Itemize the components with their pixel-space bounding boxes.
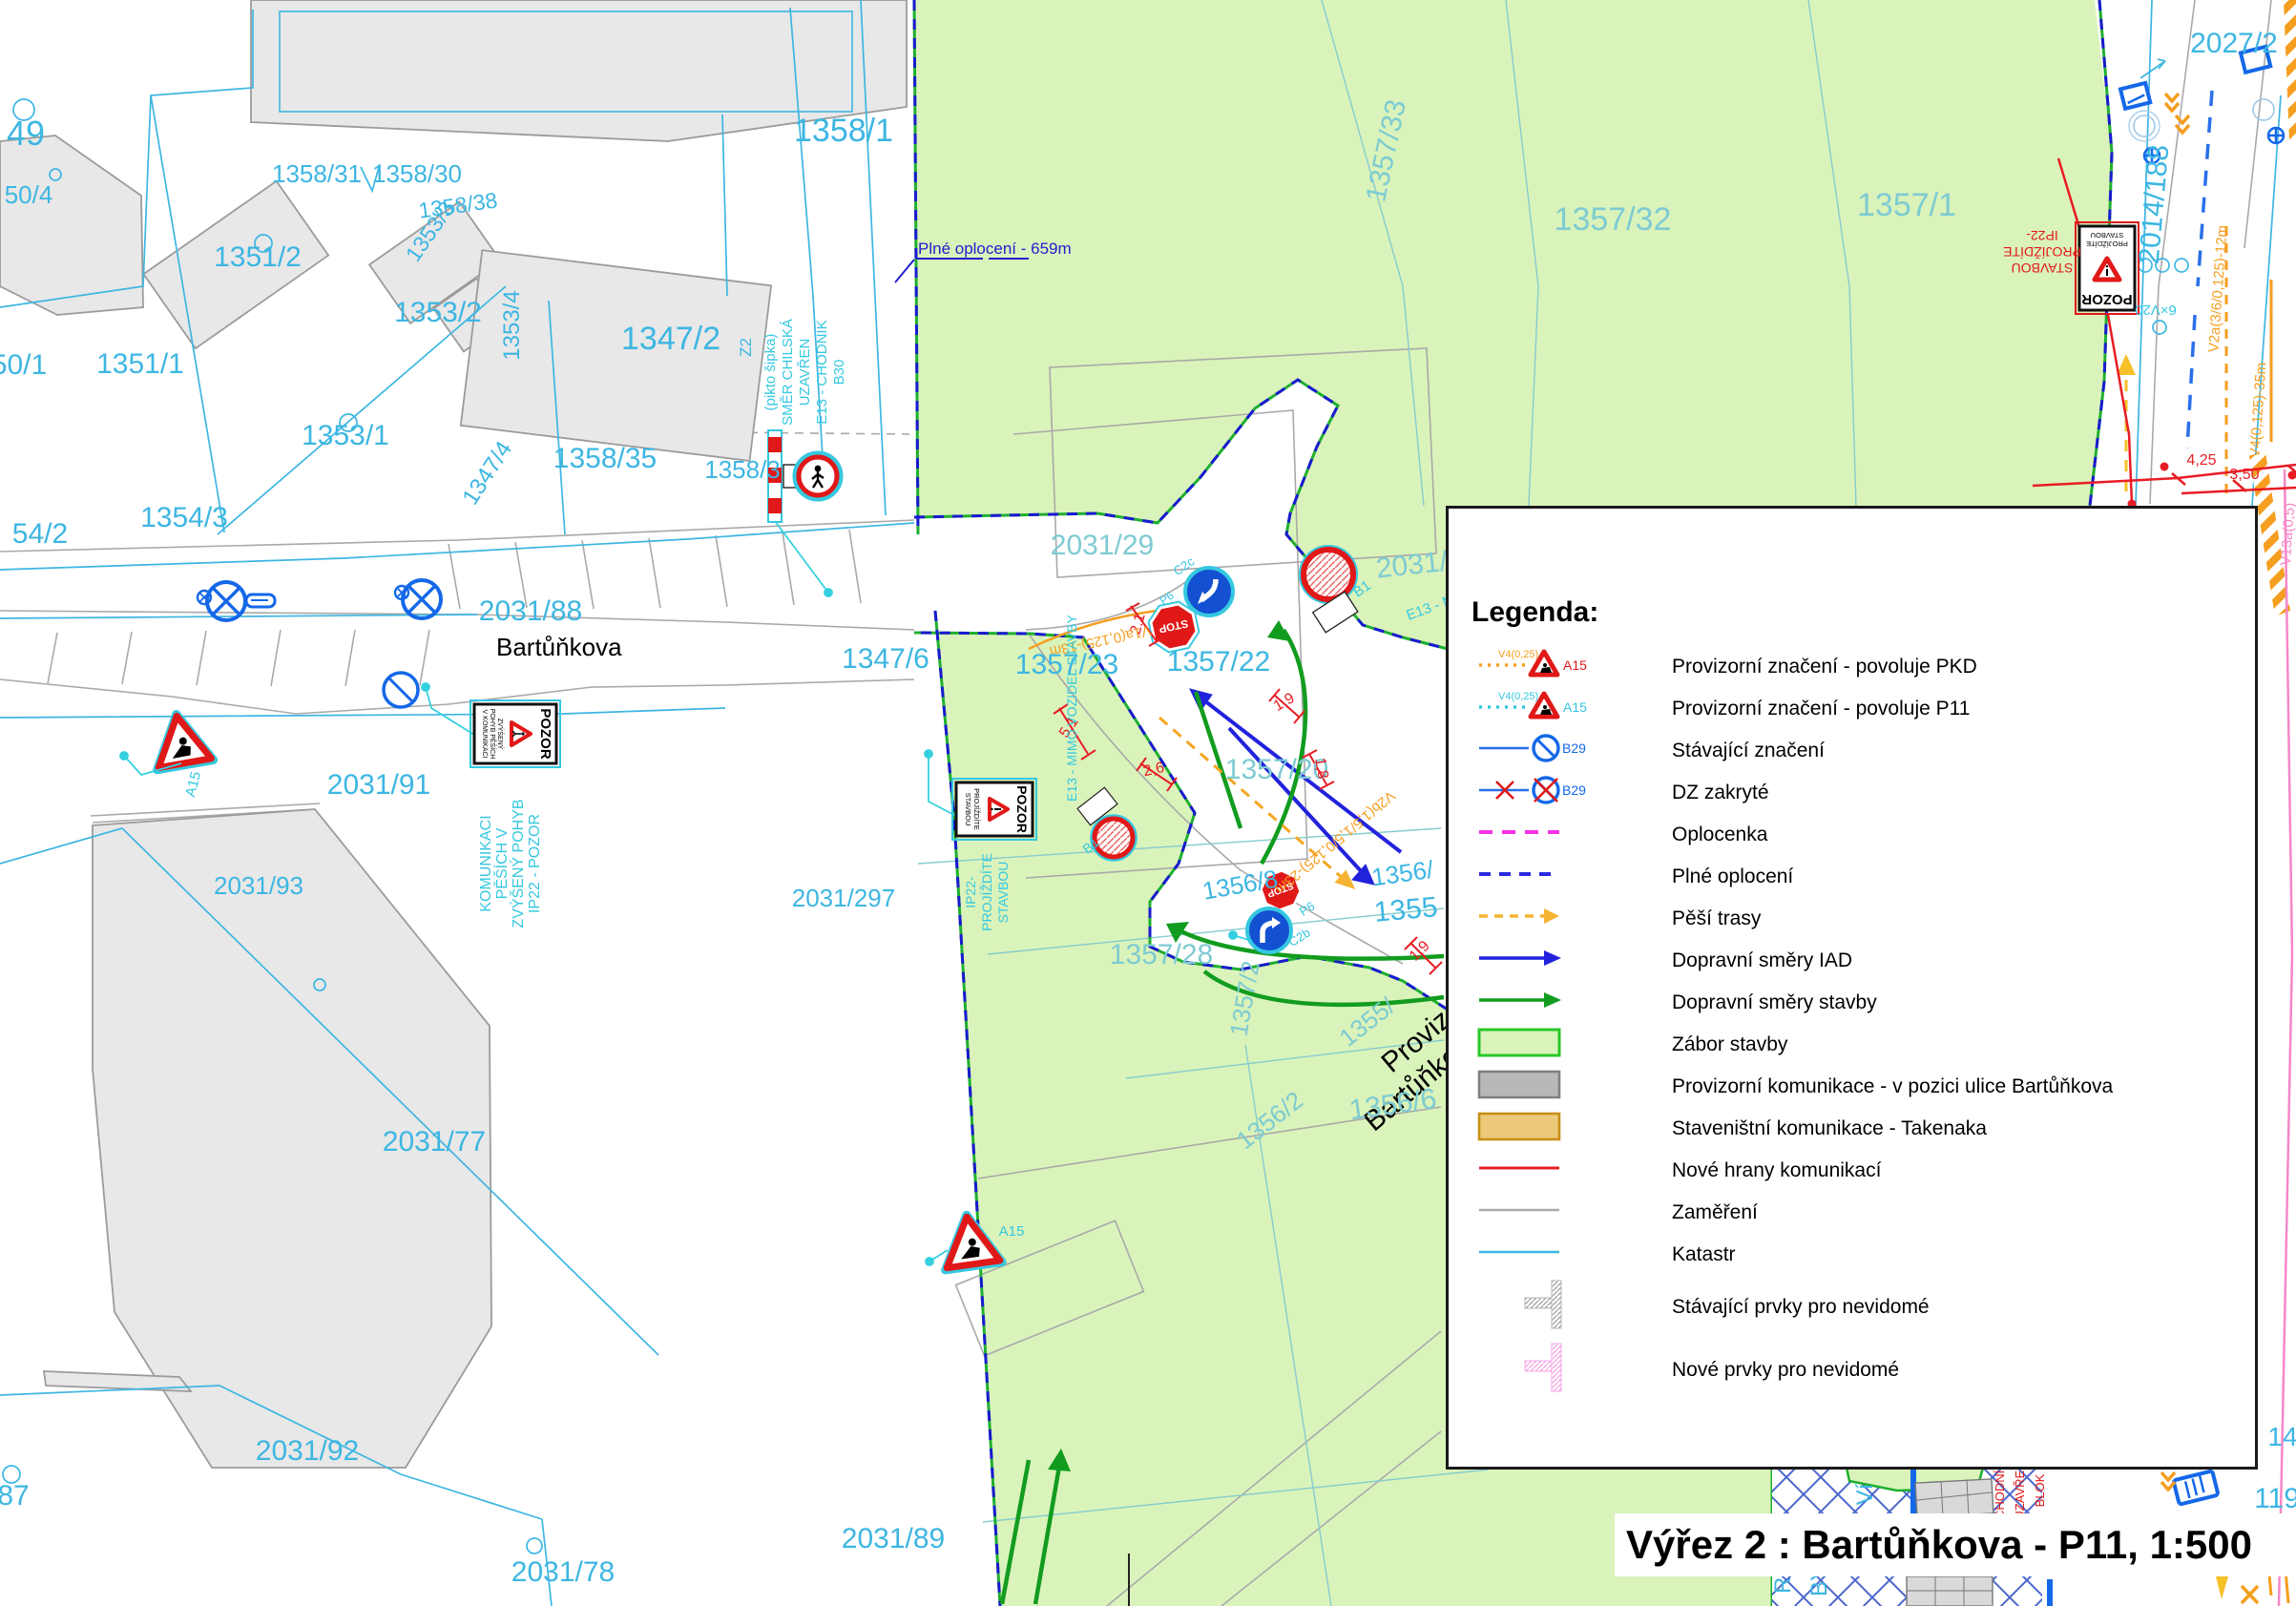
parcel-label: 2027/2: [2190, 28, 2278, 59]
legend-item-label: Pěší trasy: [1672, 907, 1761, 930]
legend-item-label: Stávající značení: [1672, 740, 1825, 762]
legend-symbol-pesi-trasy: [1472, 900, 1672, 938]
svg-text:Plné oplocení - 659m: Plné oplocení - 659m: [918, 240, 1072, 258]
legend-symbol-zabor: [1472, 1026, 1672, 1064]
legend-item-label: Oplocenka: [1672, 824, 1767, 846]
hatch-text-fragment: Ví: [1852, 1483, 1878, 1505]
legend-item-prvky-nove: Nové prvky pro nevidomé: [1449, 1339, 2255, 1402]
parcel-label: 50/1: [0, 349, 47, 381]
sign-c2b: [1247, 908, 1291, 952]
covered-signs: [198, 580, 441, 707]
svg-text:B29: B29: [1562, 782, 1586, 798]
ip22-pesi-note: PĚŠÍCH V: [492, 827, 511, 899]
svg-text:V KOMUNIKACI: V KOMUNIKACI: [481, 710, 488, 759]
parcel-label: 1357/32: [1555, 201, 1672, 238]
legend-symbol-prov-komunikace: [1472, 1068, 1672, 1106]
parcel-label: 2031/78: [511, 1556, 615, 1588]
svg-text:A15: A15: [1563, 657, 1587, 673]
ip22-stavba-red-note: STAVBOU: [2012, 261, 2074, 276]
legend-item-stavenistni: Staveništní komunikace - Takenaka: [1449, 1108, 2255, 1150]
parcel-label: 49: [7, 114, 45, 153]
title-band: Výřez 2 : Bartůňkova - P11, 1:500: [1615, 1513, 2296, 1576]
ip22-pesi-note: KOMUNIKACI: [478, 815, 494, 911]
dimension-label: 3,50: [2229, 467, 2259, 483]
legend-symbol-plne-oploceni: [1472, 858, 1672, 896]
legend-item-label: Dopravní směry stavby: [1672, 991, 1877, 1014]
legend-item-label: Dopravní směry IAD: [1672, 949, 1852, 972]
legend-item-prvky-stav: Stávající prvky pro nevidomé: [1449, 1276, 2255, 1339]
chodnik-closed-note: (pikto šipka): [762, 334, 779, 411]
parcel-label: 1353/2: [394, 297, 482, 328]
dimension-label: 4,25: [2186, 452, 2216, 469]
parcel-label: 1358/35: [553, 443, 657, 474]
legend-symbol-prvky-nove: [1472, 1340, 1672, 1402]
legend-item-oplocenka: Oplocenka: [1449, 814, 2255, 856]
svg-text:POZOR: POZOR: [537, 708, 553, 760]
legend-panel: Legenda: V4(0,25) A15 Provizorní značení…: [1446, 506, 2258, 1470]
ip22-stavba-note: STAVBOU: [995, 862, 1011, 924]
ip22-stavba-red-note: PROJÍŽDÍTE: [2003, 244, 2081, 260]
board-pozor-pesi: POZOR ZVÝŠENÝ POHYB PĚŠÍCH V KOMUNIKACI: [470, 700, 560, 767]
parcel-label: 2031/93: [214, 871, 303, 900]
legend-item-plne-oploceni: Plné oplocení: [1449, 856, 2255, 898]
svg-text:A15: A15: [1563, 699, 1587, 715]
legend-item-label: Zábor stavby: [1672, 1033, 1787, 1056]
svg-text:STAVBOU: STAVBOU: [964, 793, 972, 826]
legend-symbol-stavenistni: [1472, 1110, 1672, 1148]
legend-symbol-existing: B29: [1472, 732, 1672, 770]
traffic-plan-page: ↓ S: [0, 0, 2296, 1606]
svg-text:POHYB PĚŠÍCH: POHYB PĚŠÍCH: [489, 709, 497, 760]
parcel-label: 1358/1: [794, 113, 893, 149]
legend-symbol-prvky-stav: [1472, 1277, 1672, 1339]
legend-item-label: Katastr: [1672, 1243, 1736, 1266]
sign-b1-north: [1301, 547, 1356, 602]
legend-item-label: Plné oplocení: [1672, 866, 1793, 888]
svg-text:STAVBOU: STAVBOU: [2091, 231, 2124, 240]
legend-item-katastr: Katastr: [1449, 1234, 2255, 1276]
legend-item-existing: B29 Stávající značení: [1449, 730, 2255, 772]
legend-item-label: Nové hrany komunikací: [1672, 1159, 1881, 1182]
parcel-label: 1351/2: [214, 241, 302, 273]
chodnik-closed-note: SMĚR CHILSKÁ: [780, 319, 796, 426]
legend-symbol-prov-pkd: V4(0,25) A15: [1472, 648, 1672, 686]
parcel-label: 119: [2254, 1483, 2296, 1514]
svg-text:PROJÍŽDÍTE: PROJÍŽDÍTE: [2086, 240, 2128, 248]
parcel-label: 1358/30: [372, 159, 462, 188]
svg-text:ZVÝŠENÝ: ZVÝŠENÝ: [496, 719, 505, 750]
chodnik-closed-note: UZAVŘEN: [797, 339, 813, 407]
legend-item-label: DZ zakryté: [1672, 782, 1769, 804]
sign-b1-mid: [1092, 816, 1136, 860]
legend-symbol-nove-hrany: [1472, 1152, 1672, 1190]
parcel-label: Z2: [737, 338, 755, 357]
ip22-stavba-red-note: IP22-: [2026, 228, 2058, 243]
ip22-stavba-note: IP22-: [963, 876, 978, 908]
legend-item-label: Provizorní značení - povoluje P11: [1672, 698, 1970, 720]
parcel-label: 1347/4: [457, 437, 517, 510]
parcel-label: 87: [0, 1480, 30, 1512]
legend-item-nove-hrany: Nové hrany komunikací: [1449, 1150, 2255, 1192]
parcel-label: 1353/1: [302, 420, 389, 451]
street-label: Bartůňkova: [496, 633, 622, 661]
legend-item-zabor: Zábor stavby: [1449, 1024, 2255, 1066]
legend-symbol-oplocenka: [1472, 816, 1672, 854]
parcel-label: 2031/89: [842, 1523, 945, 1554]
legend-title: Legenda:: [1472, 596, 2255, 629]
parcel-label: 1347/6: [842, 643, 929, 675]
buildings: [0, 0, 907, 1468]
legend-item-label: Provizorní značení - povoluje PKD: [1672, 656, 1977, 678]
legend-symbol-zamereni: [1472, 1194, 1672, 1232]
svg-text:V4(0,25): V4(0,25): [1498, 691, 1538, 702]
parcel-label: 1358/31: [272, 159, 362, 188]
parcel-label: 14: [2267, 1422, 2296, 1451]
parcel-label: 1355: [1372, 891, 1438, 928]
legend-item-pesi-trasy: Pěší trasy: [1449, 898, 2255, 940]
legend-symbol-covered: B29: [1472, 774, 1672, 812]
parcel-label: 2031/88: [479, 595, 582, 627]
legend-item-covered: B29 DZ zakryté: [1449, 772, 2255, 814]
parcel-label: 2031/77: [383, 1126, 486, 1158]
svg-text:B29: B29: [1562, 740, 1586, 756]
sign-code-label: A15: [999, 1223, 1025, 1240]
ip22-stavba-note: PROJÍŽDÍTE: [979, 853, 994, 931]
legend-item-iad: Dopravní směry IAD: [1449, 940, 2255, 982]
ip22-pesi-note: ZVÝŠENÝ POHYB: [509, 799, 527, 928]
svg-text:PROJÍŽDÍTE: PROJÍŽDÍTE: [972, 788, 981, 830]
parcel-label: 1358/3: [704, 455, 781, 484]
parcel-label: 1357/22: [1167, 646, 1270, 678]
parcel-label: 1354/3: [140, 502, 228, 533]
board-pozor-stavba-mid: POZOR PROJÍŽDÍTE STAVBOU: [952, 779, 1036, 840]
legend-symbol-prov-p11: V4(0,25) A15: [1472, 690, 1672, 728]
parcel-label: 2031/92: [256, 1435, 359, 1467]
legend-item-prov-p11: V4(0,25) A15 Provizorní značení - povolu…: [1449, 688, 2255, 730]
legend-item-label: Nové prvky pro nevidomé: [1672, 1359, 1899, 1382]
e13-mimo-label: E13 - MIMO VOZIDEL STAVBY: [1064, 615, 1079, 802]
board-pozor-stavba-ne: POZOR PROJÍŽDÍTE STAVBOU: [2076, 222, 2139, 314]
sign-code-label: A15: [182, 770, 204, 799]
parcel-label: 1353/4: [499, 290, 525, 360]
parcel-label: 1357/1: [1857, 187, 1956, 223]
sign-b30: [796, 454, 840, 498]
legend-symbol-katastr: [1472, 1236, 1672, 1274]
legend-item-label: Provizorní komunikace - v pozici ulice B…: [1672, 1075, 2113, 1098]
legend-item-prov-pkd: V4(0,25) A15 Provizorní značení - povolu…: [1449, 646, 2255, 688]
parcel-label: 2031/297: [792, 884, 895, 912]
legend-item-zamereni: Zaměření: [1449, 1192, 2255, 1234]
road-marking-label: 6×V20: [2135, 302, 2177, 318]
road-marking-label: V13a(0,5): [2278, 502, 2296, 566]
chodnik-red-note: BLOK: [2033, 1473, 2047, 1507]
chodnik-closed-note: E13 - CHODNÍK: [814, 320, 830, 424]
legend-item-label: Staveništní komunikace - Takenaka: [1672, 1117, 1987, 1140]
parcel-label: 2031/29: [1051, 530, 1154, 561]
svg-text:POZOR: POZOR: [1014, 785, 1030, 833]
sign-c2c: [1185, 568, 1233, 615]
sign-a15-west: [148, 709, 213, 770]
ip22-pesi-note: IP22 - POZOR: [527, 814, 543, 913]
parcel-label: 1347/2: [621, 321, 720, 357]
chodnik-red-note: UZAVŘEN: [2013, 1461, 2027, 1519]
legend-item-label: Zaměření: [1672, 1201, 1758, 1224]
svg-text:POZOR: POZOR: [2081, 291, 2133, 307]
legend-item-stavba: Dopravní směry stavby: [1449, 982, 2255, 1024]
chodnik-closed-note: B30: [831, 360, 847, 386]
legend-item-prov-komunikace: Provizorní komunikace - v pozici ulice B…: [1449, 1066, 2255, 1108]
legend-item-label: Stávající prvky pro nevidomé: [1672, 1296, 1930, 1319]
parcel-label: 2031/91: [327, 769, 430, 801]
legend-symbol-iad: [1472, 942, 1672, 980]
parcel-label: 1357/28: [1110, 939, 1213, 970]
chodnik-red-note: CHODNÍK: [1993, 1462, 2007, 1519]
legend-symbol-stavba: [1472, 984, 1672, 1022]
parcel-label: 54/2: [12, 518, 68, 550]
parcel-label: 50/4: [5, 180, 53, 209]
parcel-label: 1351/1: [96, 348, 184, 380]
svg-text:V4(0,25): V4(0,25): [1498, 649, 1538, 660]
drawing-title: Výřez 2 : Bartůňkova - P11, 1:500: [1615, 1522, 2252, 1568]
